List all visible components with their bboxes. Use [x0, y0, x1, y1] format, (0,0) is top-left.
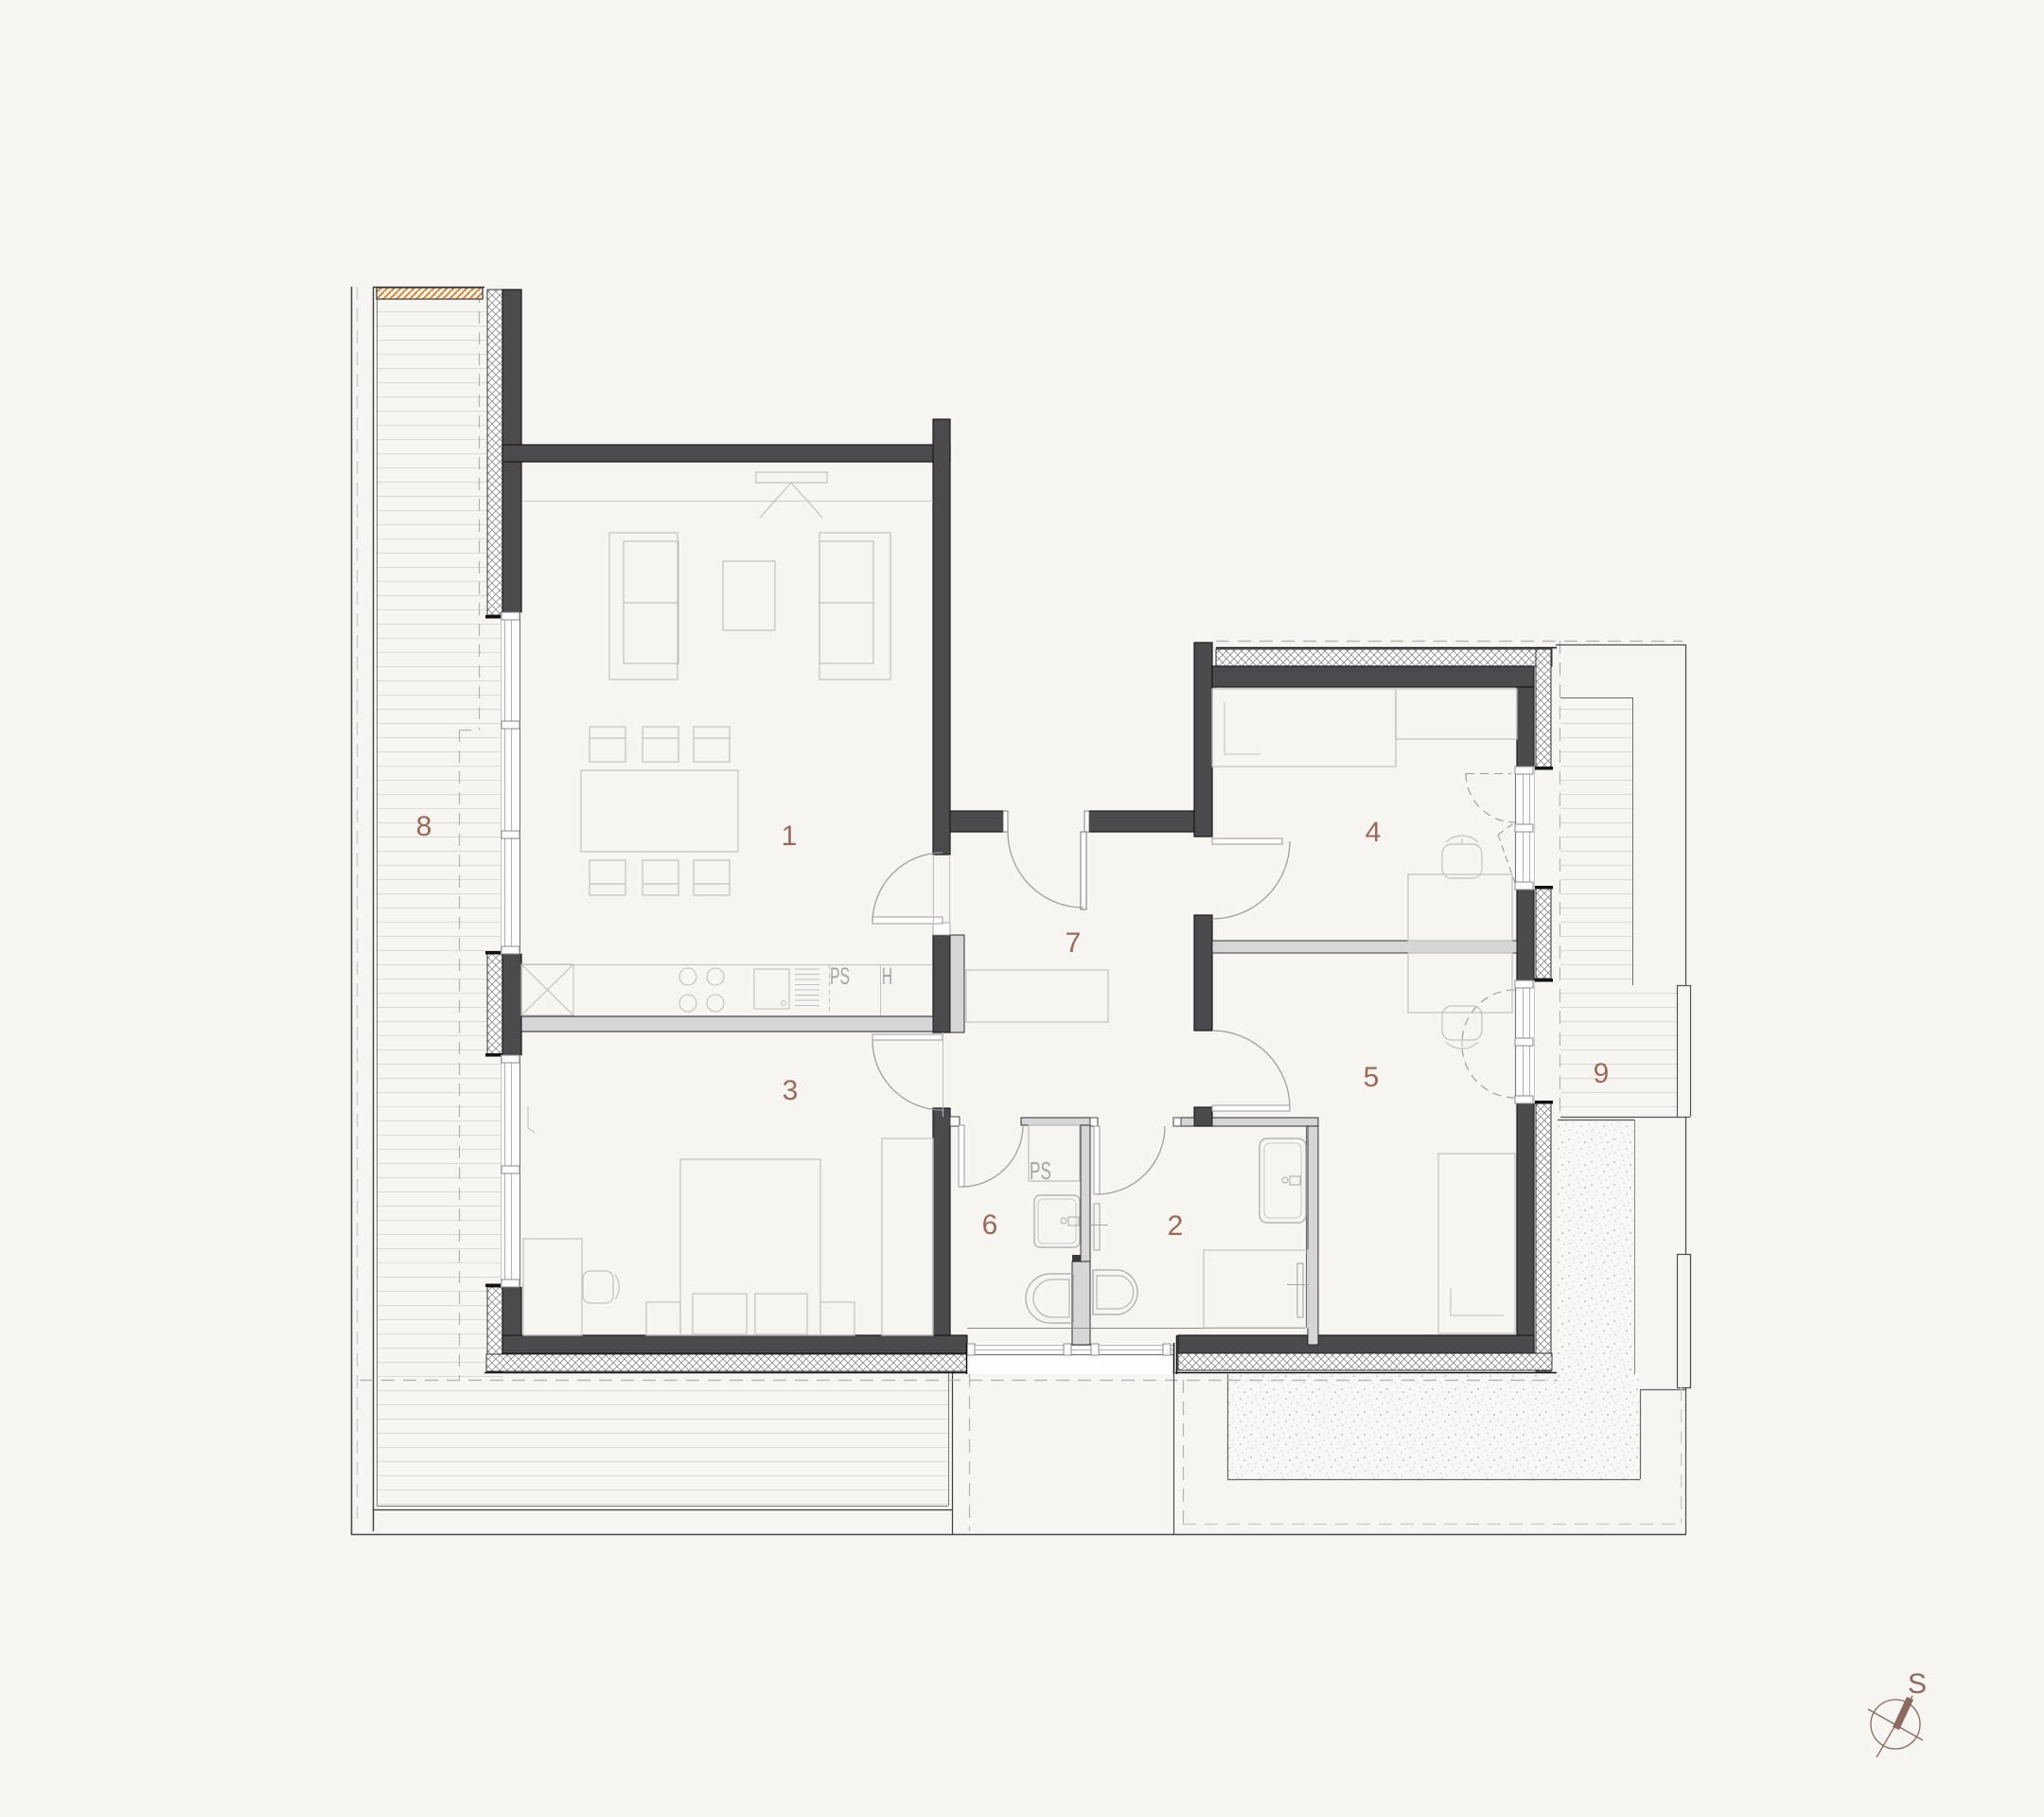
svg-text:6: 6: [982, 1209, 998, 1241]
svg-text:5: 5: [1364, 1062, 1380, 1093]
svg-text:S: S: [1908, 1668, 1927, 1700]
svg-text:H: H: [882, 963, 892, 990]
svg-text:8: 8: [416, 811, 432, 842]
svg-text:7: 7: [1066, 927, 1082, 959]
svg-text:4: 4: [1366, 817, 1382, 848]
svg-text:9: 9: [1594, 1058, 1610, 1089]
svg-text:2: 2: [1168, 1210, 1184, 1242]
svg-text:PS: PS: [830, 963, 850, 990]
svg-text:3: 3: [783, 1075, 799, 1106]
svg-text:PS: PS: [1030, 1156, 1051, 1185]
svg-text:1: 1: [782, 820, 798, 852]
